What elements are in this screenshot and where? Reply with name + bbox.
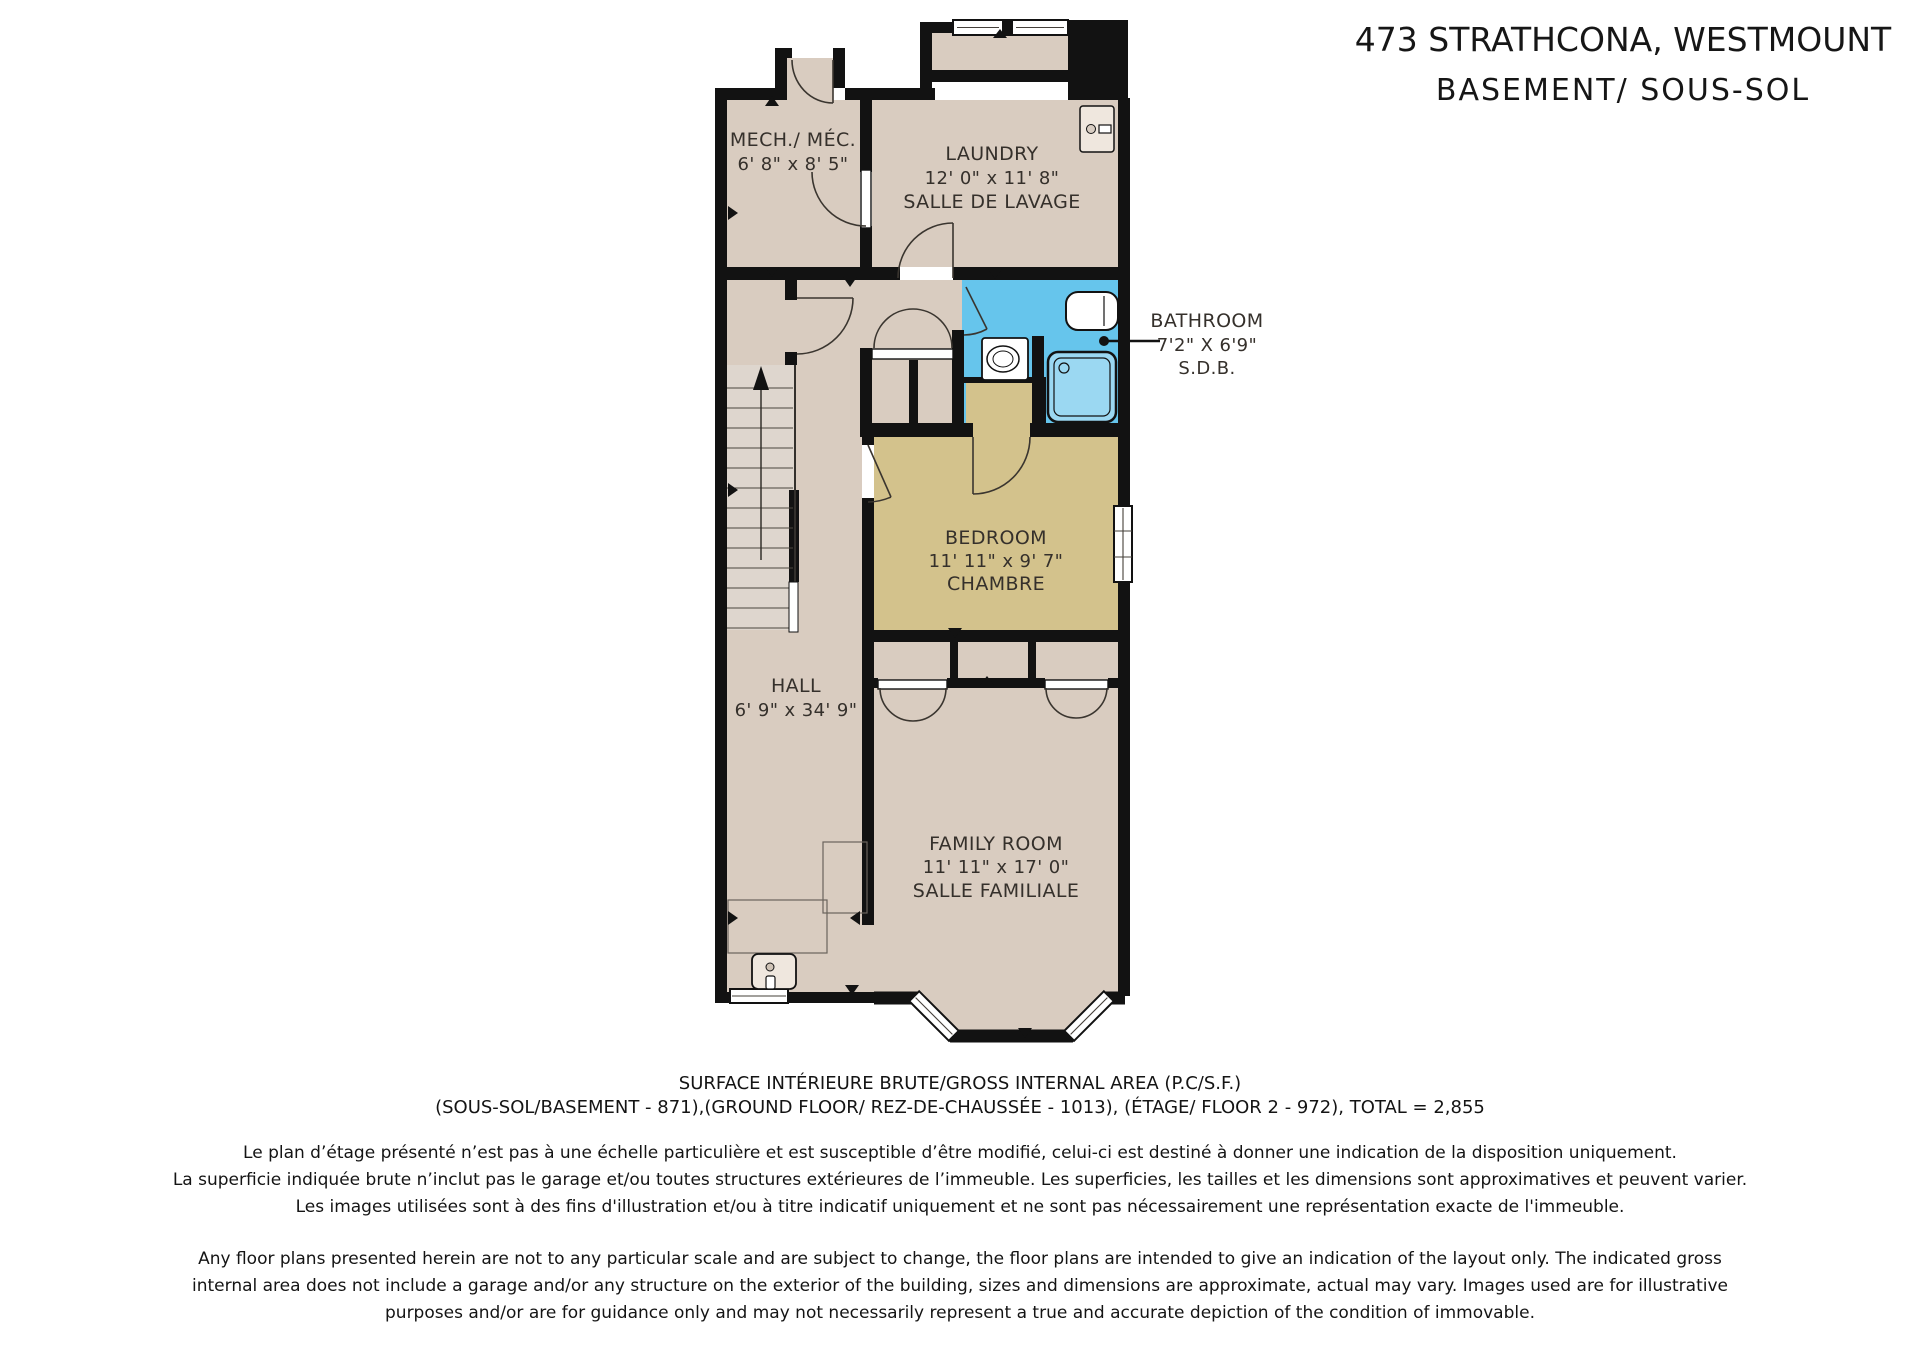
- mech-dims: 6' 8" x 8' 5": [737, 154, 848, 175]
- surface-area-line-1: SURFACE INTÉRIEURE BRUTE/GROSS INTERNAL …: [0, 1072, 1920, 1096]
- bathtub-icon: [1066, 292, 1118, 330]
- disclaimer-en-line-1: Any floor plans presented herein are not…: [0, 1246, 1920, 1273]
- hall-dims: 6' 9" x 34' 9": [735, 700, 858, 721]
- hall-window-icon: [730, 989, 788, 1003]
- bedroom-label: BEDROOM: [945, 527, 1047, 549]
- laundry-dims: 12' 0" x 11' 8": [925, 168, 1060, 189]
- bathroom-label: BATHROOM: [1150, 310, 1263, 332]
- disclaimer-english: Any floor plans presented herein are not…: [0, 1246, 1920, 1327]
- family-room-label: FAMILY ROOM: [929, 833, 1063, 855]
- plan-title: 473 STRATHCONA, WESTMOUNT BASEMENT/ SOUS…: [1340, 20, 1906, 108]
- laundry-window-icon: [953, 20, 1068, 35]
- bedroom-dims: 11' 11" x 9' 7": [929, 551, 1064, 572]
- hall-label: HALL: [771, 675, 821, 697]
- title-line-1: 473 STRATHCONA, WESTMOUNT: [1340, 20, 1906, 59]
- bedroom-subtitle: CHAMBRE: [947, 573, 1045, 595]
- family-room-dims: 11' 11" x 17' 0": [923, 857, 1070, 878]
- laundry-label: LAUNDRY: [945, 143, 1038, 165]
- disclaimer-fr-line-1: Le plan d’étage présenté n’est pas à une…: [0, 1140, 1920, 1167]
- toilet-icon: [982, 338, 1028, 380]
- laundry-subtitle: SALLE DE LAVAGE: [903, 191, 1080, 213]
- bathroom-dims: 7'2" X 6'9": [1157, 335, 1257, 356]
- floor-plan-page: BATHROOM 7'2" X 6'9" S.D.B. MECH./ MÉC. …: [0, 0, 1920, 1357]
- disclaimer-fr-line-2: La superficie indiquée brute n’inclut pa…: [0, 1167, 1920, 1194]
- mech-label: MECH./ MÉC.: [730, 128, 856, 151]
- bathroom-subtitle: S.D.B.: [1178, 358, 1235, 379]
- title-line-2: BASEMENT/ SOUS-SOL: [1340, 73, 1906, 108]
- mech-floor: [727, 100, 860, 267]
- laundry-tub-icon: [752, 954, 796, 989]
- footer: SURFACE INTÉRIEURE BRUTE/GROSS INTERNAL …: [0, 1072, 1920, 1327]
- floor-plan: BATHROOM 7'2" X 6'9" S.D.B. MECH./ MÉC. …: [0, 0, 1920, 1060]
- family-room-subtitle: SALLE FAMILIALE: [913, 880, 1080, 902]
- disclaimer-french: Le plan d’étage présenté n’est pas à une…: [0, 1140, 1920, 1221]
- electrical-panel-icon: [1080, 106, 1114, 152]
- disclaimer-fr-line-3: Les images utilisées sont à des fins d'i…: [0, 1194, 1920, 1221]
- shower-icon: [1048, 352, 1116, 422]
- bedroom-window-icon: [1114, 506, 1132, 582]
- surface-area-line-2: (SOUS-SOL/BASEMENT - 871),(GROUND FLOOR/…: [0, 1096, 1920, 1120]
- disclaimer-en-line-2: internal area does not include a garage …: [0, 1273, 1920, 1300]
- chimney: [1068, 20, 1128, 100]
- disclaimer-en-line-3: purposes and/or are for guidance only an…: [0, 1300, 1920, 1327]
